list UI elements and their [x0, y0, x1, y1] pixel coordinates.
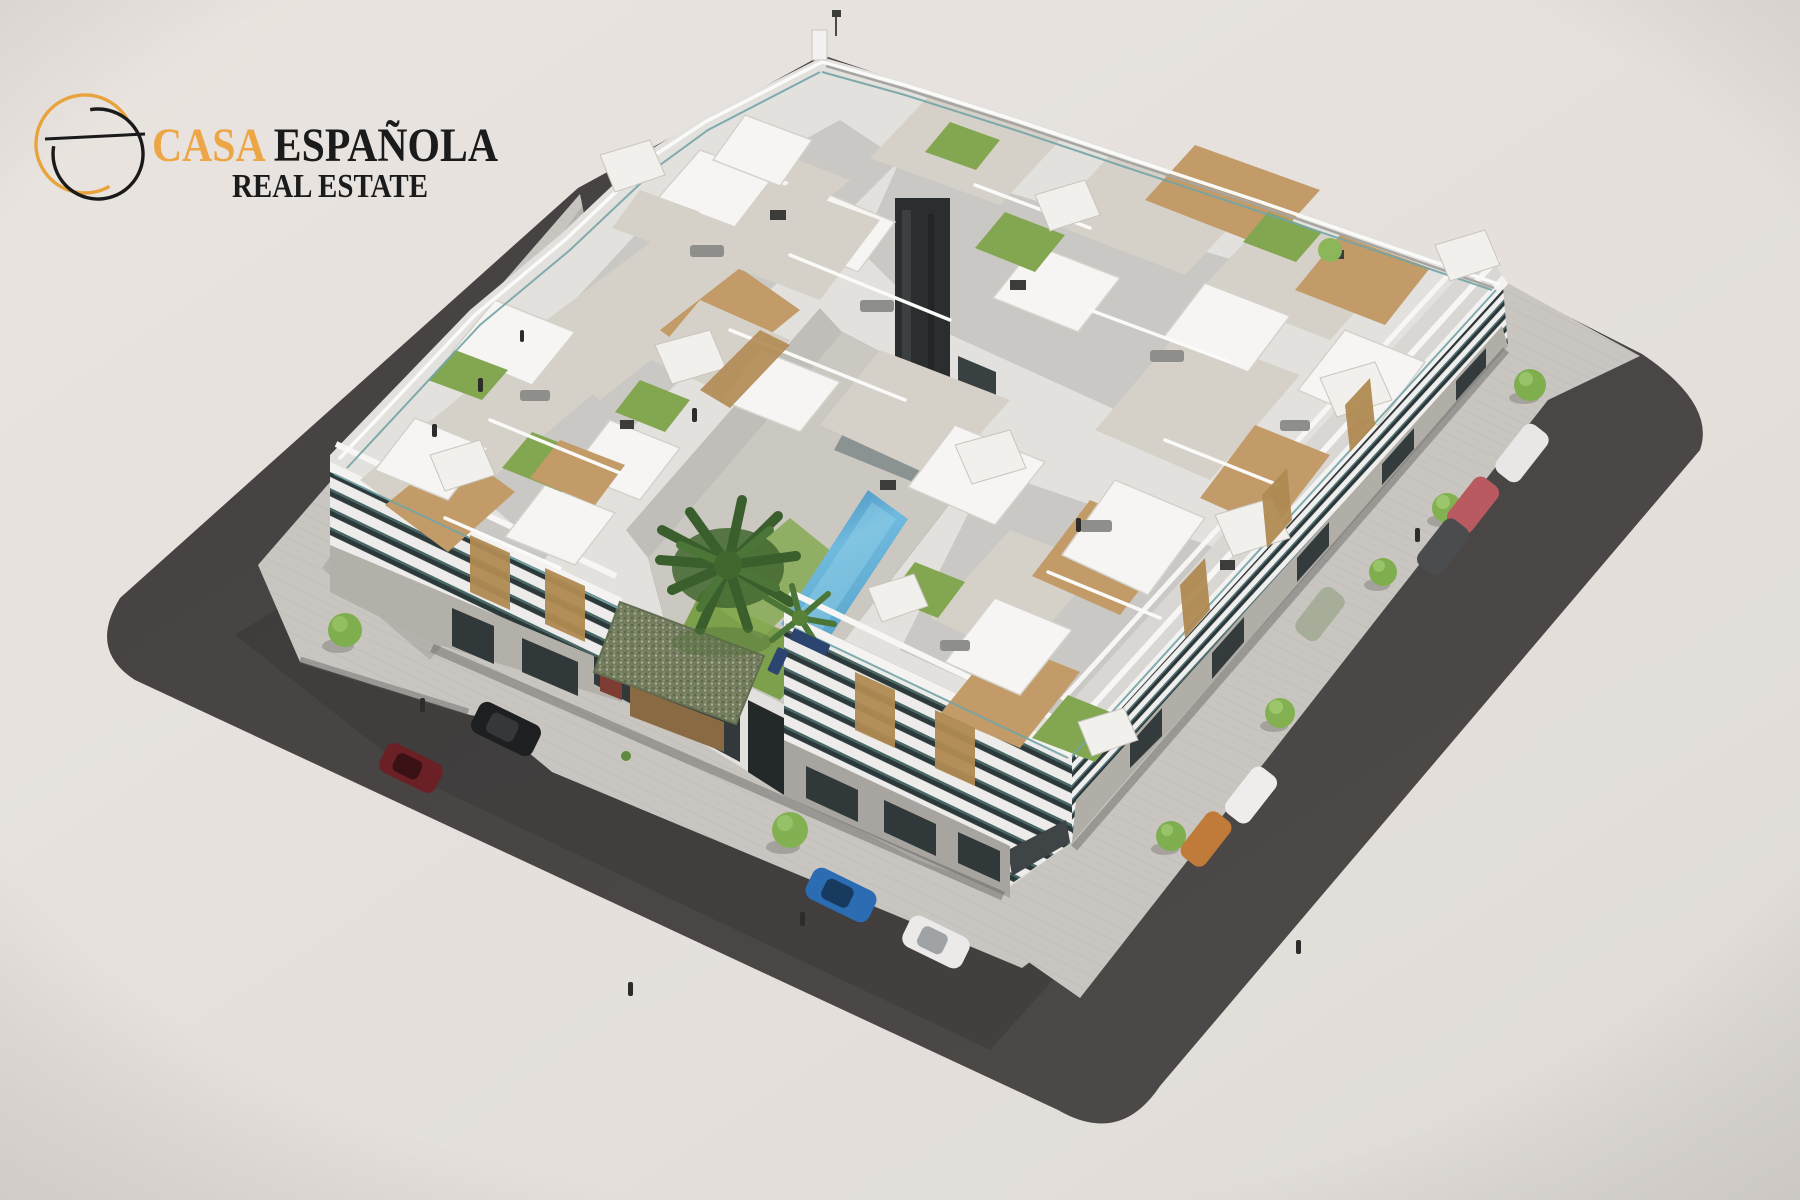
svg-text:REAL ESTATE: REAL ESTATE: [232, 168, 428, 205]
svg-text:CASA ESPAÑOLA: CASA ESPAÑOLA: [152, 119, 498, 172]
